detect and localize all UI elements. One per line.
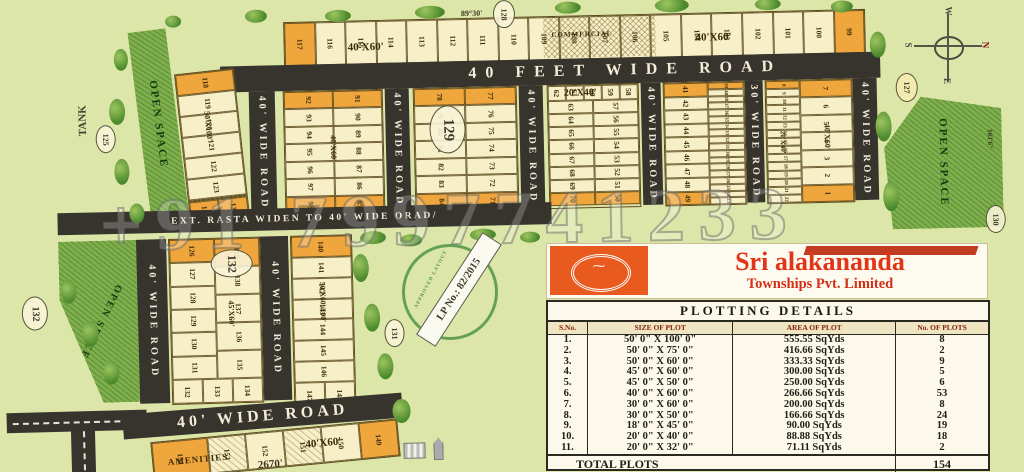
table-title: PLOTTING DETAILS	[548, 302, 988, 322]
plot-cell: 137	[215, 294, 261, 323]
marker-132: 132	[21, 296, 48, 331]
tree	[352, 254, 369, 282]
plot-cell: 126	[169, 239, 215, 263]
total-value: 154	[896, 455, 988, 472]
table-body: 1.50' 0" X 100' 0"555.55 SqYds82.50' 0" …	[548, 335, 988, 455]
plot-cell: 141	[291, 256, 352, 278]
compass-n: N	[980, 42, 990, 49]
table-row: 8.30' 0" X 50' 0"166.66 SqYds24	[548, 411, 988, 422]
plot-cell: 131	[172, 355, 218, 379]
tree	[392, 399, 411, 423]
compass-w: W	[944, 7, 954, 16]
vroad-low-2: 40' WIDE ROAD	[260, 236, 292, 401]
brand-emblem: ⁓	[550, 246, 648, 295]
plot-cell: 144	[293, 319, 354, 341]
block-lower-1-bottom: 132133134	[173, 378, 264, 404]
plot-cell: 132	[173, 379, 204, 404]
vroad-low-1: 40' WIDE ROAD	[136, 239, 170, 404]
compass-axis	[947, 14, 949, 82]
plot-cell: 128	[170, 285, 216, 309]
open-space-label: OPEN SPACE	[77, 283, 124, 362]
table-row: 7.30' 0" X 60' 0"200.00 SqYds8	[548, 400, 988, 411]
total-label: TOTAL PLOTS	[548, 455, 896, 472]
size-label-50x60-100: 50'X60'/100'	[318, 282, 328, 322]
table-row: 2.50' 0" X 75' 0"416.66 SqYds2	[548, 346, 988, 357]
table-row: 4.45' 0" X 60' 0"300.00 SqYds5	[548, 367, 988, 378]
table-row: 6.40' 0" X 60' 0"266.66 SqYds53	[548, 389, 988, 400]
monument-icon	[433, 438, 444, 460]
plotting-table: PLOTTING DETAILS S.No.SIZE OF PLOTAREA O…	[546, 300, 990, 471]
table-row: 10.20' 0" X 40' 0"88.88 SqYds18	[548, 432, 988, 443]
plot-cell: 127	[170, 262, 216, 286]
plot-cell: 140	[291, 235, 352, 257]
plot-cell: 135	[217, 350, 263, 379]
plot-cell: 130	[171, 332, 217, 356]
compass-s: S	[904, 42, 914, 47]
table-header-row: S.No.SIZE OF PLOTAREA OF PLOTNo. OF PLOT…	[548, 322, 988, 335]
dim-2670: 2670'	[257, 457, 283, 471]
table-row: 1.50' 0" X 100' 0"555.55 SqYds8	[548, 335, 988, 346]
size-label-45x60: 45'X60'	[227, 300, 237, 326]
plot-cell: 129	[171, 309, 217, 333]
plot-cell: 146	[294, 360, 355, 382]
road-t-vertical	[71, 429, 96, 472]
monogram-icon: ⁓	[550, 258, 648, 274]
compass-rose: W N S E	[908, 12, 988, 88]
table-row: 9.18' 0" X 45' 0"90.00 SqYds19	[548, 421, 988, 432]
scale-icon	[403, 442, 425, 459]
plot-cell: 133	[203, 378, 234, 403]
brand-subtitle: Townships Pvt. Limited	[655, 276, 985, 293]
plot-cell: 136	[216, 322, 262, 351]
compass-e: E	[942, 78, 952, 84]
compass-axis	[914, 45, 982, 47]
table-row: 5.45' 0" X 50' 0"250.00 SqYds6	[548, 378, 988, 389]
brand-title: Sri alakananda	[655, 249, 985, 275]
plot-cell: 149	[358, 420, 399, 459]
open-space-lower: OPEN SPACE	[58, 240, 142, 404]
table-row: 11.20' 0" X 32' 0"71.11 SqYds2	[548, 443, 988, 455]
tree	[377, 353, 394, 379]
layout-map: 1171161151141131121111101091081071061051…	[0, 0, 1024, 472]
plot-cell: 145	[294, 339, 355, 361]
plot-cell: 134	[233, 378, 264, 403]
table-total-row: TOTAL PLOTS 154	[548, 455, 988, 472]
block-lower-2: 140141142143144145146 147148 50'X60'/100…	[290, 234, 357, 410]
compass-center	[934, 36, 964, 60]
tree	[364, 303, 381, 331]
marker-131: 131	[384, 319, 405, 348]
table-row: 3.50' 0" X 60' 0"333.33 SqYds9	[548, 357, 988, 368]
brand-box: ⁓ Sri alakananda Townships Pvt. Limited	[546, 243, 988, 299]
